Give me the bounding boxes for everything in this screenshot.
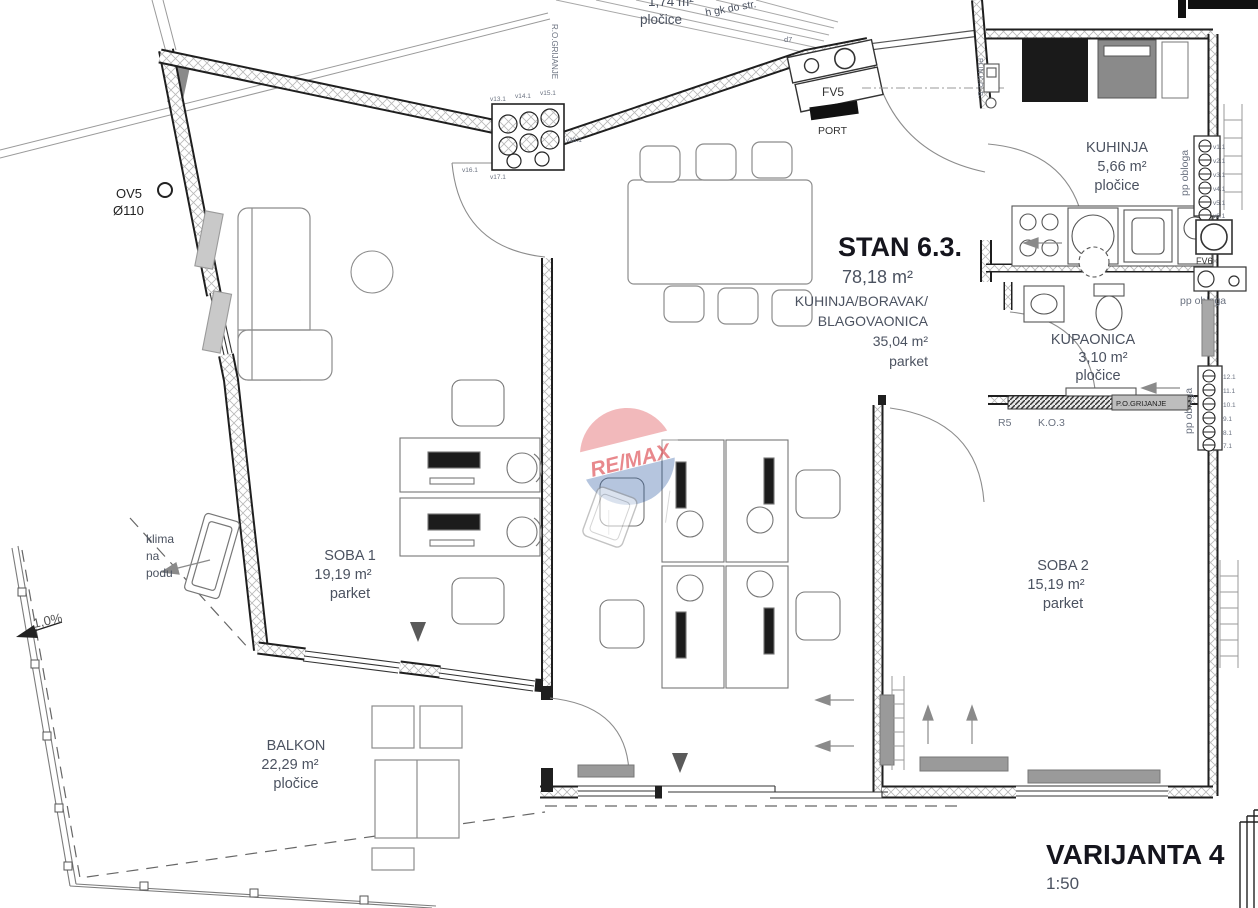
svg-text:na: na — [146, 549, 160, 563]
svg-text:BLAGOVAONICA: BLAGOVAONICA — [818, 313, 929, 329]
radiators — [578, 695, 1160, 783]
ro-grijanje-label: R.O.GRIJANJE — [550, 24, 559, 79]
svg-text:klima: klima — [146, 532, 174, 546]
svg-text:KUHINJA/BORAVAK/: KUHINJA/BORAVAK/ — [795, 293, 928, 309]
valve-label: v2.1 — [1213, 158, 1226, 165]
bathroom-label: KUPAONICA 3,10 m² pločice — [1051, 332, 1136, 384]
d7-label: d7 — [784, 35, 792, 44]
svg-text:KUPAONICA: KUPAONICA — [1051, 332, 1136, 348]
svg-text:1,0%: 1,0% — [32, 610, 65, 631]
stairs-lines — [556, 0, 838, 54]
valve-label: 10.1 — [1223, 402, 1236, 409]
fv5-label: FV5 — [822, 85, 844, 99]
svg-text:KUHINJA: KUHINJA — [1086, 140, 1148, 156]
valve-label: 12.1 — [1223, 374, 1236, 381]
loggia-area: 1,74 m² — [648, 0, 694, 9]
soba1-desks — [400, 380, 542, 624]
svg-text:OV5: OV5 — [116, 186, 142, 201]
valve-label: v16.1 — [462, 167, 478, 174]
fv6-label: FV6 — [1196, 256, 1213, 266]
valve-label: v17.1 — [490, 174, 506, 181]
ko3-label: K.O.3 — [1038, 417, 1065, 429]
valve-label: v3.1 — [1213, 172, 1226, 179]
kitchen-counter-bottom — [1012, 206, 1213, 266]
svg-text:SOBA 2: SOBA 2 — [1037, 558, 1089, 574]
svg-text:VARIJANTA 4: VARIJANTA 4 — [1046, 839, 1225, 870]
port-label: PORT — [818, 125, 848, 137]
balcony-furniture — [372, 706, 462, 870]
apartment-title: STAN 6.3. 78,18 m² — [838, 232, 962, 287]
svg-text:19,19 m²: 19,19 m² — [314, 567, 371, 583]
soba2-label: SOBA 2 15,19 m² parket — [1027, 558, 1088, 612]
svg-text:3,10 m²: 3,10 m² — [1078, 350, 1127, 366]
svg-text:pločice: pločice — [1094, 178, 1139, 194]
soba1-label: SOBA 1 19,19 m² parket — [314, 548, 375, 602]
valve-label: 11.1 — [1223, 388, 1236, 395]
svg-text:parket: parket — [330, 586, 370, 602]
valve-label: v15.1 — [540, 90, 556, 97]
floor-plan-page: v13.1 v14.1 v15.1 v16.1 v17.1 v18.1 R.O.… — [0, 0, 1258, 908]
svg-text:35,04 m²: 35,04 m² — [873, 333, 929, 349]
kitchen-shaft: v1.1 v2.1 v3.1 v4.1 v5.1 v6.1 FV6 — [1194, 136, 1246, 291]
bath-shaft: 12.1 11.1 10.1 9.1 8.1 7.1 — [1198, 366, 1236, 451]
pp-obloga-kitchen: pp obloga — [1179, 150, 1191, 196]
living-label: KUHINJA/BORAVAK/ BLAGOVAONICA 35,04 m² p… — [795, 293, 929, 369]
balcony-label: BALKON 22,29 m² pločice — [261, 738, 325, 792]
valve-label: v5.1 — [1213, 200, 1226, 207]
valve-label: v6.1 — [1213, 213, 1226, 220]
dining-table — [628, 180, 812, 284]
valve-label: 9.1 — [1223, 416, 1232, 423]
valve-label: v1.1 — [1213, 144, 1226, 151]
kitchen-right-ladder — [1224, 104, 1242, 210]
ov5-annotation: OV5 Ø110 — [113, 183, 172, 218]
svg-text:pločice: pločice — [273, 776, 318, 792]
svg-text:BALKON: BALKON — [267, 738, 326, 754]
valve-label: 7.1 — [1223, 443, 1232, 450]
svg-text:P.O.GRIJANJE: P.O.GRIJANJE — [1116, 399, 1166, 408]
svg-text:1:50: 1:50 — [1046, 874, 1079, 893]
klima-unit — [184, 513, 241, 600]
sofa — [238, 208, 332, 380]
valve-label: v4.1 — [1213, 186, 1226, 193]
variant-title: VARIJANTA 4 1:50 — [1046, 839, 1225, 893]
plin-label: PLIN K.O. B. — [976, 58, 983, 98]
valve-label: 8.1 — [1223, 430, 1232, 437]
rug — [351, 251, 393, 293]
svg-text:parket: parket — [889, 353, 928, 369]
floor-plan-canvas: v13.1 v14.1 v15.1 v16.1 v17.1 v18.1 R.O.… — [0, 0, 1258, 908]
svg-text:15,19 m²: 15,19 m² — [1027, 577, 1084, 593]
svg-text:parket: parket — [1043, 596, 1083, 612]
heating-shaft-top: v13.1 v14.1 v15.1 v16.1 v17.1 v18.1 — [462, 90, 582, 181]
floor-heating-strip: P.O.GRIJANJE — [1008, 395, 1190, 410]
gas-meter — [984, 64, 999, 108]
svg-text:SOBA 1: SOBA 1 — [324, 548, 376, 564]
hgk-note: h gk do str. — [704, 0, 757, 19]
valve-label: v18.1 — [566, 137, 582, 144]
kitchen-label: KUHINJA 5,66 m² pločice — [1086, 140, 1148, 194]
svg-text:78,18 m²: 78,18 m² — [842, 267, 913, 287]
loggia-floor: pločice — [640, 12, 682, 27]
svg-text:pločice: pločice — [1075, 368, 1120, 384]
r5-label: R5 — [998, 417, 1012, 429]
kitchen-appliances-top — [1022, 38, 1188, 102]
svg-text:podu: podu — [146, 566, 173, 580]
svg-text:22,29 m²: 22,29 m² — [261, 757, 318, 773]
valve-label: v14.1 — [515, 93, 531, 100]
klima-label: klima na podu — [146, 532, 174, 580]
svg-text:STAN 6.3.: STAN 6.3. — [838, 232, 962, 262]
valve-label: v13.1 — [490, 96, 506, 103]
svg-text:Ø110: Ø110 — [113, 203, 144, 218]
svg-text:5,66 m²: 5,66 m² — [1097, 159, 1146, 175]
